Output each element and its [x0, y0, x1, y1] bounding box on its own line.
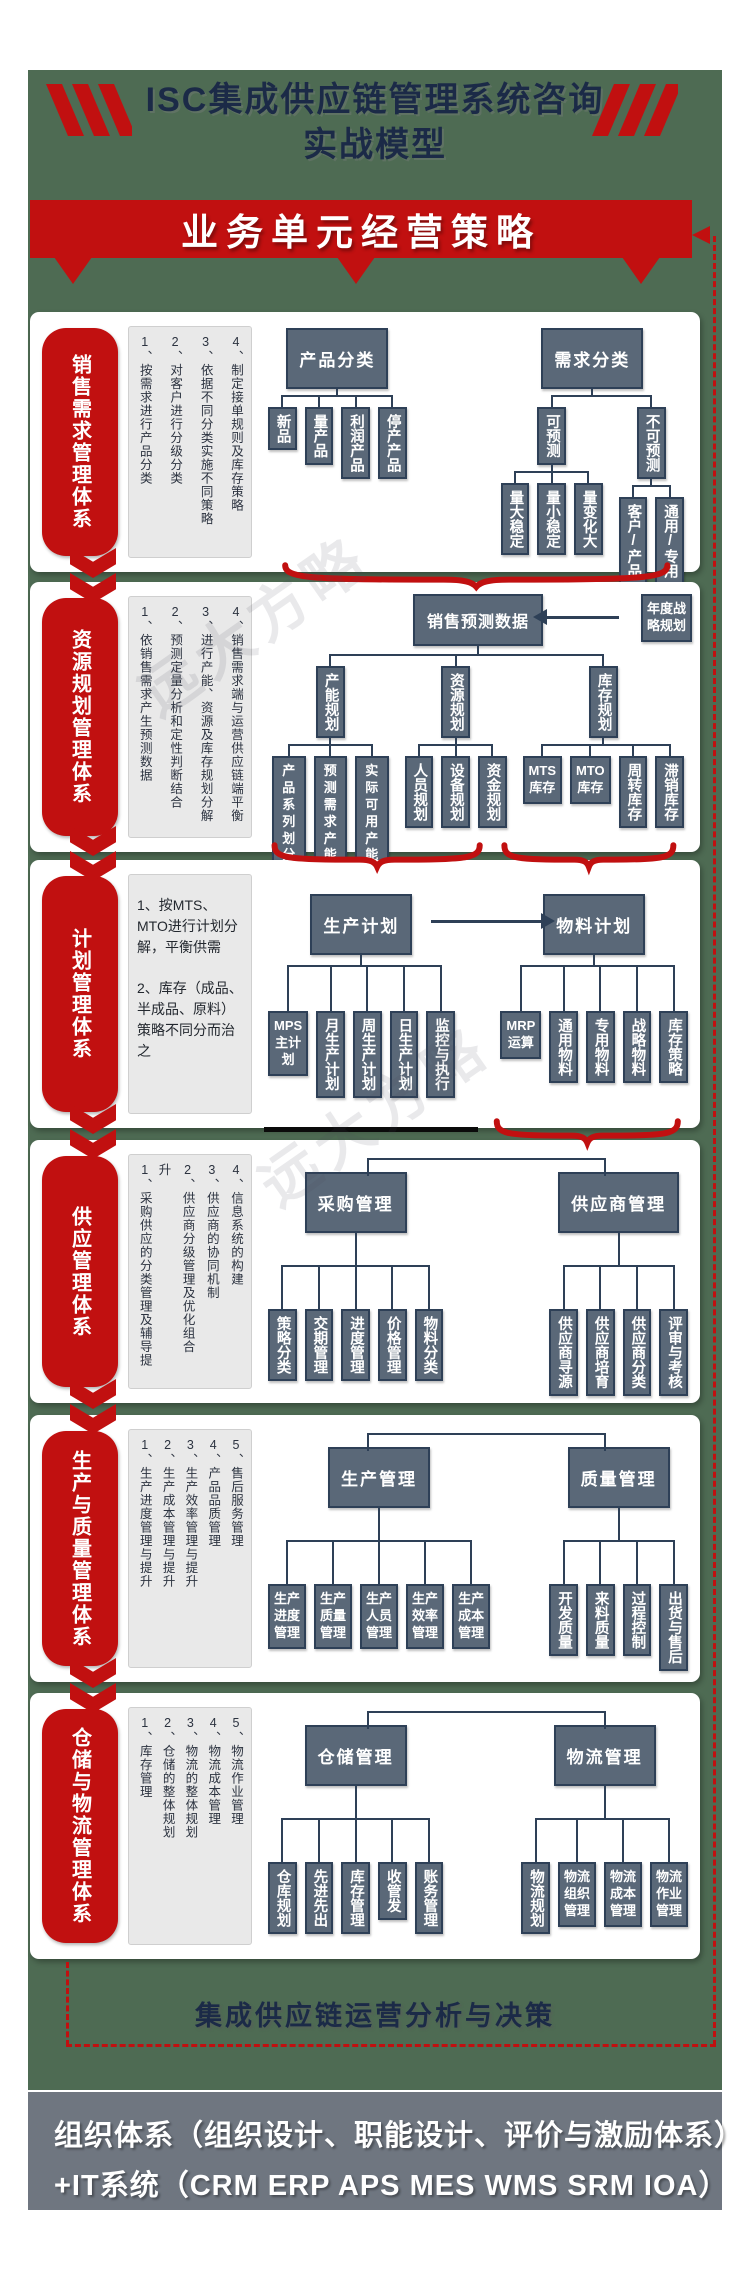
- tree-node: 供应商分类: [623, 1309, 652, 1396]
- tree-node: 过程控制: [623, 1584, 652, 1656]
- child-branch: 来料质量: [582, 1540, 619, 1656]
- child-branch: 可预测量大稳定量小稳定量变化大: [493, 395, 611, 555]
- chart-box: 通用物料: [549, 1011, 578, 1083]
- child-branch: 仓库规划: [264, 1818, 301, 1934]
- analysis-title: 集成供应链运营分析与决策: [28, 1994, 722, 2033]
- tree-node: MRP 运算: [500, 1011, 541, 1059]
- note-item: 4、信息系统的构建: [226, 1163, 245, 1380]
- footer-line2: +IT系统（CRM ERP APS MES WMS SRM IOA）: [54, 2162, 714, 2204]
- chart-box: 过程控制: [623, 1584, 652, 1656]
- chart-box: 量产品: [305, 407, 334, 465]
- chart-box: 供应商管理: [558, 1172, 679, 1233]
- child-branch: 产能规划产品 系列 划分预测 需求 产能实际 可用 产能: [264, 654, 397, 871]
- infographic-page: ISC集成供应链管理系统咨询 实战模型 业务单元经营策略 销售需求管理体系1、按…: [0, 0, 750, 2279]
- chart-box: 资源规划: [441, 666, 470, 738]
- tree-node: 滞销库存: [655, 756, 684, 828]
- chart-box: 人员规划: [405, 756, 434, 828]
- section-card-sales-demand: 销售需求管理体系1、按需求进行产品分类2、对客户进行分级分类3、依据不同分类实施…: [30, 312, 700, 572]
- tree-node: 采购管理策略分类交期管理进度管理价格管理物料分类: [264, 1172, 447, 1381]
- children-row: 人员规划设备规划资金规划: [401, 744, 511, 828]
- child-branch: 评审与考核: [655, 1265, 692, 1396]
- section-label: 销售需求管理体系: [42, 328, 118, 556]
- note-item: 2、供应商分级管理及优化组合: [178, 1163, 197, 1380]
- child-branch: 新品: [264, 395, 301, 450]
- child-branch: 物流 成本 管理: [600, 1818, 646, 1927]
- tree-node: 生产管理生产 进度 管理生产 质量 管理生产 人员 管理生产 效率 管理生产 成…: [264, 1447, 494, 1649]
- section-chart: 年度战 略规划销售预测数据产能规划产品 系列 划分预测 需求 产能实际 可用 产…: [264, 592, 692, 842]
- tree-node: 物流 组织 管理: [558, 1862, 596, 1927]
- section-label: 生产与质量管理体系: [42, 1431, 118, 1666]
- tree-node: 新品: [268, 407, 297, 450]
- section-label: 计划管理体系: [42, 876, 118, 1112]
- feedback-line-bottom: [66, 2044, 716, 2047]
- section-notes: 1、生产进度管理与提升2、生产成本管理与提升3、生产效率管理与提升4、产品品质管…: [128, 1429, 252, 1668]
- tree-node: 日生产计划: [390, 1011, 419, 1098]
- children-row: 供应商寻源供应商培育供应商分类评审与考核: [545, 1265, 692, 1396]
- tree-node: 量大稳定: [501, 483, 530, 555]
- section-notes: 1、按MTS、MTO进行计划分解，平衡供需2、库存（成品、半成品、原料）策略不同…: [128, 874, 252, 1114]
- note-item: 4、制定接单规则及库存策略: [226, 335, 245, 549]
- child-branch: 设备规划: [437, 744, 474, 828]
- tree-node: 生产 质量 管理: [314, 1584, 352, 1649]
- tree-node: 物流规划: [521, 1862, 550, 1934]
- note-item: 4、销售需求端与运营供应链端平衡: [226, 605, 245, 829]
- children-row: 生产 进度 管理生产 质量 管理生产 人员 管理生产 效率 管理生产 成本 管理: [264, 1540, 494, 1649]
- tree-node: 生产 成本 管理: [452, 1584, 490, 1649]
- child-branch: 收管发: [374, 1818, 411, 1920]
- chart-box: MPS 主计 划: [268, 1011, 308, 1076]
- note-item: 2、仓储的整体规划: [158, 1716, 177, 1936]
- connector-stem: [360, 955, 362, 965]
- tree-node: 周转库存: [619, 756, 648, 828]
- child-branch: 账务管理: [411, 1818, 448, 1934]
- note-item: 5、物流作业管理: [226, 1716, 245, 1936]
- chart-box: 物流 成本 管理: [604, 1862, 642, 1927]
- tree-node: 先进先出: [305, 1862, 334, 1934]
- section-notes: 1、采购供应的分类管理及辅导提升2、供应商分级管理及优化组合3、供应商的协同机制…: [128, 1154, 252, 1389]
- chart-box: 开发质量: [549, 1584, 578, 1656]
- child-branch: 日生产计划: [386, 965, 423, 1098]
- chart-box: 生产管理: [328, 1447, 430, 1508]
- tree-node: 战略物料: [623, 1011, 652, 1083]
- chart-box: 专用物料: [586, 1011, 615, 1083]
- child-branch: 生产 质量 管理: [310, 1540, 356, 1649]
- chart-box: 进度管理: [341, 1309, 370, 1381]
- child-branch: 通用物料: [545, 965, 582, 1083]
- chart-box: 量小稳定: [537, 483, 566, 555]
- connector-stem: [593, 955, 595, 965]
- section-card-planning: 计划管理体系1、按MTS、MTO进行计划分解，平衡供需2、库存（成品、半成品、原…: [30, 860, 700, 1128]
- chart-box: MTO 库存: [570, 756, 611, 804]
- footer-line1: 组织体系（组织设计、职能设计、评价与激励体系）: [54, 2112, 714, 2154]
- chart-box: 产品分类: [286, 328, 388, 389]
- child-branch: 物流 作业 管理: [646, 1818, 692, 1927]
- tree-node: 质量管理开发质量来料质量过程控制出货与售后: [545, 1447, 692, 1671]
- brace-connector: [491, 1120, 684, 1144]
- child-branch: 资金规划: [474, 744, 511, 828]
- chart-box: 资金规划: [478, 756, 507, 828]
- child-branch: 进度管理: [337, 1265, 374, 1381]
- note-item: 2、生产成本管理与提升: [158, 1438, 177, 1659]
- tree-node: 供应商寻源: [549, 1309, 578, 1396]
- chart-box: 采购管理: [305, 1172, 407, 1233]
- tree-node: 供应商管理供应商寻源供应商培育供应商分类评审与考核: [545, 1172, 692, 1396]
- note-item: 5、售后服务管理: [226, 1438, 245, 1659]
- tree-node: 物流 成本 管理: [604, 1862, 642, 1927]
- chart-box: 评审与考核: [659, 1309, 688, 1396]
- child-branch: 过程控制: [619, 1540, 656, 1656]
- chart-box: 生产 质量 管理: [314, 1584, 352, 1649]
- child-branch: MPS 主计 划: [264, 965, 312, 1076]
- section-label: 供应管理体系: [42, 1156, 118, 1387]
- child-branch: 生产 进度 管理: [264, 1540, 310, 1649]
- tree-node: 账务管理: [415, 1862, 444, 1934]
- children-row: 策略分类交期管理进度管理价格管理物料分类: [264, 1265, 447, 1381]
- child-branch: 出货与售后: [655, 1540, 692, 1671]
- note-item: 3、生产效率管理与提升: [181, 1438, 200, 1659]
- child-branch: 供应商寻源: [545, 1265, 582, 1396]
- chart-box: 可预测: [537, 407, 566, 465]
- chart-box: 来料质量: [586, 1584, 615, 1656]
- child-branch: 策略分类: [264, 1265, 301, 1381]
- note-item: 1、采购供应的分类管理及辅导提升: [135, 1163, 173, 1380]
- tree-node: 库存管理: [341, 1862, 370, 1934]
- children-row: 可预测量大稳定量小稳定量变化大不可预测客户/产品通用/专用: [493, 395, 692, 585]
- section-chart: 采购管理策略分类交期管理进度管理价格管理物料分类供应商管理供应商寻源供应商培育供…: [264, 1150, 692, 1393]
- child-branch: 专用物料: [582, 965, 619, 1083]
- chart-box: 利润产品: [341, 407, 370, 479]
- tree-node: 仓库规划: [268, 1862, 297, 1934]
- child-branch: 价格管理: [374, 1265, 411, 1381]
- chart-box: 出货与售后: [659, 1584, 688, 1671]
- tree-node: 需求分类可预测量大稳定量小稳定量变化大不可预测客户/产品通用/专用: [493, 328, 692, 585]
- section-label: 资源规划管理体系: [42, 598, 118, 836]
- chart-box: MRP 运算: [500, 1011, 541, 1059]
- child-branch: 开发质量: [545, 1540, 582, 1656]
- tree-node: 月生产计划: [316, 1011, 345, 1098]
- note-item: 3、供应商的协同机制: [202, 1163, 221, 1380]
- children-row: 物流规划物流 组织 管理物流 成本 管理物流 作业 管理: [517, 1818, 692, 1934]
- chart-box: 月生产计划: [316, 1011, 345, 1098]
- tree-node: 设备规划: [441, 756, 470, 828]
- pair-connector: [367, 1711, 607, 1729]
- tree-node: 评审与考核: [659, 1309, 688, 1396]
- down-chevron-icon: [70, 1104, 116, 1160]
- chart-box: 物流规划: [521, 1862, 550, 1934]
- chart-box: 交期管理: [305, 1309, 334, 1381]
- tree-node: 通用物料: [549, 1011, 578, 1083]
- note-item: 3、进行产能、资源及库存规划分解: [196, 605, 215, 829]
- child-branch: 物流 组织 管理: [554, 1818, 600, 1927]
- child-branch: 库存策略: [655, 965, 692, 1083]
- chart-box: 收管发: [378, 1862, 407, 1920]
- chart-box: 先进先出: [305, 1862, 334, 1934]
- children-row: MRP 运算通用物料专用物料战略物料库存策略: [496, 965, 692, 1083]
- connector-stem: [618, 1233, 620, 1265]
- child-branch: 生产 成本 管理: [448, 1540, 494, 1649]
- child-branch: 停产产品: [374, 395, 411, 479]
- child-branch: 交期管理: [301, 1265, 338, 1381]
- child-branch: 生产 效率 管理: [402, 1540, 448, 1649]
- note-item: 4、产品品质管理: [203, 1438, 222, 1659]
- brace-connector: [499, 844, 679, 868]
- tree-node: 物料分类: [415, 1309, 444, 1381]
- child-branch: 不可预测客户/产品通用/专用: [611, 395, 692, 585]
- section-card-supply: 供应管理体系1、采购供应的分类管理及辅导提升2、供应商分级管理及优化组合3、供应…: [30, 1140, 700, 1403]
- child-branch: 战略物料: [619, 965, 656, 1083]
- child-branch: 供应商分类: [619, 1265, 656, 1396]
- tree-node: 人员规划: [405, 756, 434, 828]
- tree-node: 供应商培育: [586, 1309, 615, 1396]
- brace-connector: [268, 844, 486, 868]
- note-item: 1、按MTS、MTO进行计划分解，平衡供需: [137, 895, 243, 958]
- tree-node: 产品分类新品量产品利润产品停产产品: [264, 328, 411, 479]
- section-chart: 仓储管理仓库规划先进先出库存管理收管发账务管理物流管理物流规划物流 组织 管理物…: [264, 1703, 692, 1949]
- note-item: 4、物流成本管理: [203, 1716, 222, 1936]
- tree-node: 量产品: [305, 407, 334, 465]
- chart-box: 需求分类: [541, 328, 643, 389]
- divider-line: [264, 1127, 478, 1132]
- hazard-stripes-right-icon: [592, 84, 678, 136]
- tree-node: 量小稳定: [537, 483, 566, 555]
- brace-connector: [273, 564, 680, 588]
- chart-box: 物流 组织 管理: [558, 1862, 596, 1927]
- child-branch: 量变化大: [570, 471, 607, 555]
- tree-node: 交期管理: [305, 1309, 334, 1381]
- tree-node: 资源规划人员规划设备规划资金规划: [401, 666, 511, 828]
- tree-node: MTS 库存: [523, 756, 562, 804]
- chart-box: 供应商寻源: [549, 1309, 578, 1396]
- section-notes: 1、按需求进行产品分类2、对客户进行分级分类3、依据不同分类实施不同策略4、制定…: [128, 326, 252, 558]
- connector-stem: [604, 1786, 606, 1818]
- connector-stem: [477, 646, 479, 654]
- children-row: MTS 库存MTO 库存周转库存滞销库存: [519, 744, 688, 828]
- chart-box: 供应商分类: [623, 1309, 652, 1396]
- child-branch: 滞销库存: [651, 744, 688, 828]
- tree-node: 策略分类: [268, 1309, 297, 1381]
- chart-box: 库存管理: [341, 1862, 370, 1934]
- chevron-band: [70, 1379, 116, 1409]
- chart-box: 生产 进度 管理: [268, 1584, 306, 1649]
- child-branch: MTS 库存: [519, 744, 566, 804]
- section-chart: 产品分类新品量产品利润产品停产产品需求分类可预测量大稳定量小稳定量变化大不可预测…: [264, 322, 692, 562]
- chart-box: 停产产品: [378, 407, 407, 479]
- child-branch: 量小稳定: [533, 471, 570, 555]
- tree-node: 生产计划MPS 主计 划月生产计划周生产计划日生产计划监控与执行: [264, 894, 459, 1098]
- chart-box: 仓储管理: [305, 1725, 407, 1786]
- chart-box: 量变化大: [574, 483, 603, 555]
- child-branch: 周转库存: [615, 744, 652, 828]
- tree-node: 生产 进度 管理: [268, 1584, 306, 1649]
- note-item: 2、预测定量分析和定性判断结合: [165, 605, 184, 829]
- tree-node: 生产 人员 管理: [360, 1584, 398, 1649]
- down-chevron-icon: [70, 826, 116, 882]
- connector-stem: [618, 1508, 620, 1540]
- chart-box: 生产 人员 管理: [360, 1584, 398, 1649]
- chart-box: 账务管理: [415, 1862, 444, 1934]
- chart-box: 新品: [268, 407, 297, 450]
- chart-box: 不可预测: [637, 407, 666, 479]
- child-branch: 先进先出: [301, 1818, 338, 1934]
- tree-node: 仓储管理仓库规划先进先出库存管理收管发账务管理: [264, 1725, 447, 1934]
- chart-box: 周转库存: [619, 756, 648, 828]
- section-card-production-quality: 生产与质量管理体系1、生产进度管理与提升2、生产成本管理与提升3、生产效率管理与…: [30, 1415, 700, 1682]
- chart-box: 量大稳定: [501, 483, 530, 555]
- child-branch: 月生产计划: [312, 965, 349, 1098]
- feedback-line-right: [713, 236, 716, 2046]
- section-card-warehouse-logistics: 仓储与物流管理体系1、库存管理2、仓储的整体规划3、物流的整体规划4、物流成本管…: [30, 1693, 700, 1959]
- annual-strategy-box: 年度战 略规划: [641, 594, 692, 642]
- child-branch: 资源规划人员规划设备规划资金规划: [397, 654, 515, 828]
- tree-node: 利润产品: [341, 407, 370, 479]
- child-branch: 人员规划: [401, 744, 438, 828]
- connector-stem: [378, 1508, 380, 1540]
- tree-node: 来料质量: [586, 1584, 615, 1656]
- down-chevron-icon: [70, 548, 116, 604]
- tree-node: 库存策略: [659, 1011, 688, 1083]
- connector-stem: [355, 1233, 357, 1265]
- chart-box: 战略物料: [623, 1011, 652, 1083]
- chart-box: 策略分类: [268, 1309, 297, 1381]
- chart-box: 仓库规划: [268, 1862, 297, 1934]
- tree-node: 开发质量: [549, 1584, 578, 1656]
- tree-node: 专用物料: [586, 1011, 615, 1083]
- tree-node: MTO 库存: [570, 756, 611, 804]
- child-branch: 量产品: [301, 395, 338, 465]
- child-branch: 生产 人员 管理: [356, 1540, 402, 1649]
- chart-box: 周生产计划: [353, 1011, 382, 1098]
- child-branch: MRP 运算: [496, 965, 545, 1059]
- tree-node: 生产 效率 管理: [406, 1584, 444, 1649]
- chart-box: 产能规划: [316, 666, 345, 738]
- chart-box: 物料计划: [543, 894, 645, 955]
- child-branch: 利润产品: [337, 395, 374, 479]
- section-label: 仓储与物流管理体系: [42, 1709, 118, 1943]
- chart-box: 滞销库存: [655, 756, 684, 828]
- tree-node: 资金规划: [478, 756, 507, 828]
- child-branch: 供应商培育: [582, 1265, 619, 1396]
- tree-node: 产能规划产品 系列 划分预测 需求 产能实际 可用 产能: [268, 666, 393, 871]
- chart-box: MTS 库存: [523, 756, 562, 804]
- footer-bar: 组织体系（组织设计、职能设计、评价与激励体系） +IT系统（CRM ERP AP…: [28, 2092, 722, 2210]
- tree-node: MPS 主计 划: [268, 1011, 308, 1076]
- chart-box: 物流 作业 管理: [650, 1862, 688, 1927]
- chart-box: 物料分类: [415, 1309, 444, 1381]
- strategy-banner: 业务单元经营策略: [30, 200, 692, 258]
- feedback-arrow-icon: [692, 226, 710, 244]
- section-card-resource-planning: 资源规划管理体系1、依销售需求产生预测数据2、预测定量分析和定性判断结合3、进行…: [30, 582, 700, 852]
- child-branch: 物料分类: [411, 1265, 448, 1381]
- chevron-band: [70, 548, 116, 578]
- chart-box: 日生产计划: [390, 1011, 419, 1098]
- child-branch: MTO 库存: [566, 744, 615, 804]
- tree-node: 量变化大: [574, 483, 603, 555]
- tree-node: 周生产计划: [353, 1011, 382, 1098]
- tree-node: 物流 作业 管理: [650, 1862, 688, 1927]
- note-item: 2、库存（成品、半成品、原料）策略不同分而治之: [137, 978, 243, 1062]
- chart-box: 生产 成本 管理: [452, 1584, 490, 1649]
- pair-connector: [367, 1433, 607, 1451]
- chart-box: 供应商培育: [586, 1309, 615, 1396]
- note-item: 3、依据不同分类实施不同策略: [196, 335, 215, 549]
- chart-box: 价格管理: [378, 1309, 407, 1381]
- chart-box: 物流管理: [554, 1725, 656, 1786]
- tree-node: 物流管理物流规划物流 组织 管理物流 成本 管理物流 作业 管理: [517, 1725, 692, 1934]
- section-notes: 1、库存管理2、仓储的整体规划3、物流的整体规划4、物流成本管理5、物流作业管理: [128, 1707, 252, 1945]
- tree-node: 可预测量大稳定量小稳定量变化大: [497, 407, 607, 555]
- chart-box: 库存规划: [589, 666, 618, 738]
- children-row: 量大稳定量小稳定量变化大: [497, 471, 607, 555]
- tree-node: 销售预测数据产能规划产品 系列 划分预测 需求 产能实际 可用 产能资源规划人员…: [264, 594, 692, 871]
- chevron-band: [70, 1104, 116, 1134]
- section-chart: 生产管理生产 进度 管理生产 质量 管理生产 人员 管理生产 效率 管理生产 成…: [264, 1425, 692, 1672]
- children-row: 产能规划产品 系列 划分预测 需求 产能实际 可用 产能资源规划人员规划设备规划…: [264, 654, 692, 871]
- section-chart: 生产计划MPS 主计 划月生产计划周生产计划日生产计划监控与执行物料计划MRP …: [264, 870, 692, 1118]
- child-branch: 库存管理: [337, 1818, 374, 1934]
- children-row: MPS 主计 划月生产计划周生产计划日生产计划监控与执行: [264, 965, 459, 1098]
- chart-box: 库存策略: [659, 1011, 688, 1083]
- tree-node: 不可预测客户/产品通用/专用: [615, 407, 688, 585]
- child-branch: 物流规划: [517, 1818, 554, 1934]
- note-item: 1、依销售需求产生预测数据: [135, 605, 154, 829]
- note-item: 3、物流的整体规划: [181, 1716, 200, 1936]
- chart-box: 监控与执行: [426, 1011, 455, 1098]
- tree-node: 收管发: [378, 1862, 407, 1920]
- children-row: 仓库规划先进先出库存管理收管发账务管理: [264, 1818, 447, 1934]
- tree-node: 停产产品: [378, 407, 407, 479]
- side-arrow: [546, 616, 619, 619]
- chart-box: 销售预测数据: [413, 594, 543, 646]
- chevron-band: [70, 826, 116, 856]
- chart-box: 质量管理: [568, 1447, 670, 1508]
- down-chevron-icon: [70, 1379, 116, 1435]
- tree-node: 价格管理: [378, 1309, 407, 1381]
- tree-node: 监控与执行: [426, 1011, 455, 1098]
- down-chevron-icon: [70, 1658, 116, 1714]
- children-row: 开发质量来料质量过程控制出货与售后: [545, 1540, 692, 1671]
- connector-stem: [355, 1786, 357, 1818]
- chart-box: 生产计划: [310, 894, 412, 955]
- child-branch: 周生产计划: [349, 965, 386, 1098]
- tree-node: 出货与售后: [659, 1584, 688, 1671]
- note-item: 1、按需求进行产品分类: [135, 335, 154, 549]
- note-item: 1、库存管理: [135, 1716, 154, 1936]
- child-branch: 监控与执行: [422, 965, 459, 1098]
- chart-box: 生产 效率 管理: [406, 1584, 444, 1649]
- child-branch: 量大稳定: [497, 471, 534, 555]
- note-item: 1、生产进度管理与提升: [135, 1438, 154, 1659]
- chevron-band: [70, 1658, 116, 1688]
- pair-connector: [367, 1158, 607, 1176]
- flow-arrow: [431, 920, 542, 923]
- chart-box: 设备规划: [441, 756, 470, 828]
- child-branch: 库存规划MTS 库存MTO 库存周转库存滞销库存: [515, 654, 692, 828]
- hazard-stripes-left-icon: [46, 84, 132, 136]
- tree-node: 库存规划MTS 库存MTO 库存周转库存滞销库存: [519, 666, 688, 828]
- tree-node: 进度管理: [341, 1309, 370, 1381]
- section-notes: 1、依销售需求产生预测数据2、预测定量分析和定性判断结合3、进行产能、资源及库存…: [128, 596, 252, 838]
- children-row: 新品量产品利润产品停产产品: [264, 395, 411, 479]
- note-item: 2、对客户进行分级分类: [165, 335, 184, 549]
